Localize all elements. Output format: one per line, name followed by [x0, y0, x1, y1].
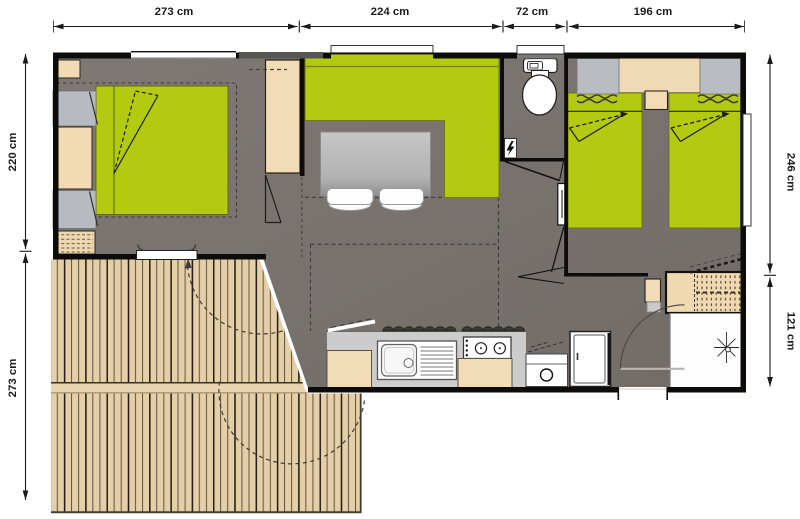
- svg-text:273 cm: 273 cm: [155, 6, 194, 18]
- svg-text:196 cm: 196 cm: [634, 6, 673, 18]
- svg-text:220 cm: 220 cm: [7, 133, 19, 172]
- svg-text:224 cm: 224 cm: [371, 6, 410, 18]
- svg-text:72 cm: 72 cm: [516, 6, 548, 18]
- svg-text:246 cm: 246 cm: [785, 153, 797, 192]
- svg-text:273 cm: 273 cm: [7, 359, 19, 398]
- svg-text:121 cm: 121 cm: [785, 312, 797, 351]
